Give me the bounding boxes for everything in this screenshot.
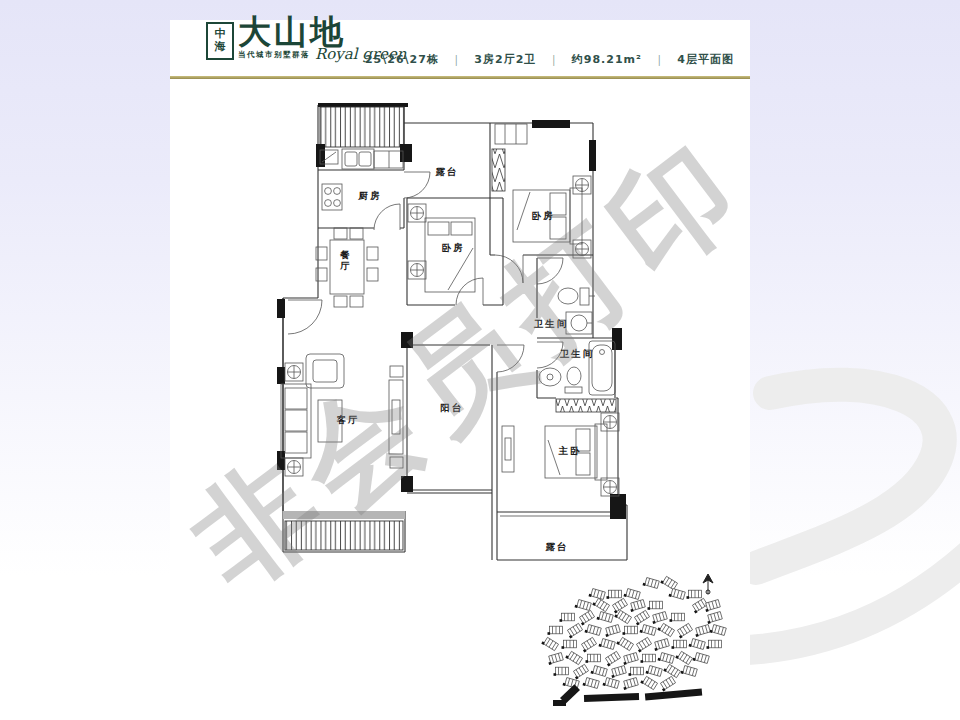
room-label-bedroom-right: 卧房 <box>532 210 555 221</box>
site-building <box>611 598 628 613</box>
room-label-terrace-bottom: 露台 <box>545 541 569 552</box>
room-label-balcony: 阳台 <box>441 402 464 413</box>
north-arrow-icon <box>703 574 713 594</box>
site-building <box>604 651 621 666</box>
site-building <box>693 652 710 664</box>
screenshot-stage: 中 海 大山地 当代城市别墅群落 Royal green 25\26\27栋 ｜… <box>0 0 960 720</box>
room-label-dining-room: 餐厅 <box>339 249 352 271</box>
site-building <box>583 677 600 689</box>
lamp-symbol <box>408 204 426 222</box>
site-building <box>646 665 663 677</box>
bed-middle <box>425 218 475 292</box>
railing-top-bar <box>283 511 405 519</box>
site-building <box>710 624 727 636</box>
room-label-bedroom-middle: 卧房 <box>442 242 465 253</box>
lamp-symbol <box>285 458 303 476</box>
wardrobe-hatch <box>492 149 505 191</box>
lamp-symbol <box>573 176 591 194</box>
room-label-living-room: 客厅 <box>337 414 360 425</box>
lamp-symbol <box>601 478 619 496</box>
sofa <box>281 384 311 458</box>
site-building <box>653 639 670 651</box>
site-building <box>706 612 723 624</box>
site-building <box>640 624 657 636</box>
site-building <box>704 600 721 612</box>
trellis-top-bar <box>318 103 408 107</box>
site-building <box>672 640 687 649</box>
floorplan-doors <box>288 172 563 372</box>
site-building <box>641 654 656 663</box>
master-window-louver <box>556 399 616 412</box>
site-building <box>663 663 680 678</box>
site-building <box>694 625 711 637</box>
site-building <box>554 667 569 676</box>
lamp-symbol <box>408 261 426 279</box>
railing-hatch <box>285 521 403 550</box>
site-building <box>707 640 722 649</box>
site-building <box>657 622 674 637</box>
site-building <box>622 653 639 665</box>
site-building <box>669 588 686 600</box>
site-building <box>541 636 558 651</box>
site-building <box>622 678 639 690</box>
lamp-symbol <box>285 363 303 381</box>
lamp-symbol <box>601 413 619 431</box>
site-building <box>599 638 616 650</box>
master-cabinet <box>502 426 514 472</box>
site-building <box>624 588 641 600</box>
site-building <box>659 676 676 691</box>
closet <box>495 124 527 144</box>
room-label-kitchen: 厨房 <box>358 190 382 201</box>
room-label-bathroom-lower: 卫生间 <box>560 348 595 359</box>
site-building <box>562 640 577 649</box>
site-building <box>675 650 692 665</box>
site-building <box>691 598 708 613</box>
site-building <box>648 601 663 610</box>
site-building <box>681 665 698 677</box>
toilet-upper <box>558 288 595 305</box>
site-building <box>643 577 660 589</box>
armchair <box>306 354 344 388</box>
room-label-terrace-top: 露台 <box>435 166 459 177</box>
room-label-bathroom-upper: 卫生间 <box>534 318 569 329</box>
site-building <box>591 665 608 677</box>
site-building <box>580 637 597 652</box>
floorplan-furniture <box>281 124 615 480</box>
site-building <box>586 654 601 663</box>
trellis-hatch <box>320 107 404 147</box>
site-building <box>640 675 657 690</box>
sink-upper <box>566 312 592 334</box>
site-building <box>623 626 638 635</box>
site-building <box>589 588 606 600</box>
site-building <box>629 600 646 612</box>
site-building <box>604 625 621 637</box>
site-building <box>670 613 685 622</box>
site-building <box>633 610 650 625</box>
floorplan-windows <box>277 120 626 519</box>
site-building <box>585 624 602 636</box>
site-building <box>597 611 614 623</box>
site-building <box>610 666 627 678</box>
floorplan-svg: 露台厨房卧房卧房餐厅卫生间卫生间客厅阳台主卧露台 <box>0 0 960 720</box>
site-building <box>616 636 633 651</box>
site-building <box>592 597 609 612</box>
sink-lower <box>539 368 561 386</box>
site-building <box>689 638 706 650</box>
site-building <box>547 653 564 665</box>
site-building <box>607 590 622 599</box>
site-building <box>676 623 693 638</box>
site-building <box>629 667 644 676</box>
site-plan-buildings <box>541 575 726 691</box>
site-building <box>687 590 702 599</box>
site-building <box>578 610 595 625</box>
kitchen-counter <box>320 149 403 169</box>
toilet-lower <box>565 367 582 393</box>
site-building <box>575 599 592 611</box>
site-building <box>635 637 652 652</box>
site-building <box>658 652 675 664</box>
room-labels: 露台厨房卧房卧房餐厅卫生间卫生间客厅阳台主卧露台 <box>337 166 595 552</box>
site-plan <box>541 574 726 706</box>
site-building <box>603 677 620 689</box>
tv-cabinet <box>389 366 403 468</box>
site-building <box>651 612 668 624</box>
site-building <box>572 664 589 679</box>
site-building <box>565 650 582 665</box>
room-label-master-bedroom: 主卧 <box>558 445 582 456</box>
stove <box>322 184 342 210</box>
site-building <box>548 626 563 635</box>
site-building <box>566 623 583 638</box>
site-building <box>560 613 575 622</box>
site-building <box>660 575 677 590</box>
